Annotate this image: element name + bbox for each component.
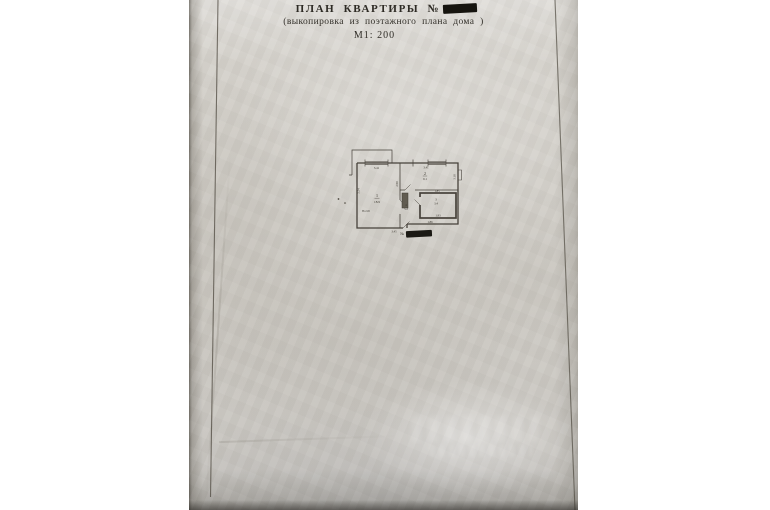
dim-below-bathroom: 1.86 bbox=[427, 220, 433, 224]
dim-left-wall: 5.54 bbox=[357, 188, 361, 194]
room3-area: 3.4 bbox=[434, 202, 438, 206]
document-header: ПЛАН КВАРТИРЫ № (выкопировка из поэтажно… bbox=[189, 3, 578, 42]
title-text: ПЛАН КВАРТИРЫ № bbox=[296, 3, 441, 15]
room2-number: 2 bbox=[424, 171, 426, 176]
dim-top-right: 3.41 bbox=[423, 166, 429, 170]
kitchen-door bbox=[405, 185, 411, 191]
room1-area: 18.9 bbox=[374, 200, 380, 204]
frame-line-left bbox=[211, 0, 219, 497]
apartment-number-label: № bbox=[400, 231, 404, 236]
dim-bathroom-bottom: 1.93 bbox=[435, 214, 441, 218]
dim-middle-wall: 2.90 bbox=[395, 181, 399, 187]
document-title: ПЛАН КВАРТИРЫ № bbox=[189, 3, 578, 16]
scale-label: М1: 200 bbox=[189, 30, 578, 42]
redaction-bar-title-number bbox=[443, 3, 477, 14]
photographed-document: ПЛАН КВАРТИРЫ № (выкопировка из поэтажно… bbox=[189, 0, 578, 510]
room1-number: 1 bbox=[376, 193, 378, 198]
entrance-door bbox=[403, 222, 410, 229]
dim-bottom: 3.45 bbox=[391, 230, 397, 234]
floor-plan: 1 18.9 Н=2.65 2 9.1 3 3.4 4 5.2 3.41 3.4… bbox=[337, 144, 467, 246]
stray-mark bbox=[344, 202, 346, 204]
redaction-bar-plan-number bbox=[406, 230, 432, 238]
room4-area: 5.2 bbox=[404, 207, 408, 211]
document-frame bbox=[189, 0, 578, 510]
document-subtitle: (выкопировка из поэтажного плана дома ) bbox=[189, 16, 578, 28]
dim-right-wall: 3.18 bbox=[453, 174, 457, 180]
stray-mark bbox=[338, 198, 340, 200]
room2-area: 9.1 bbox=[423, 177, 427, 181]
dim-above-bathroom: 1.85 bbox=[434, 189, 440, 193]
dim-top-left: 3.41 bbox=[374, 166, 380, 170]
frame-line-right bbox=[555, 0, 575, 510]
room1-height-note: Н=2.65 bbox=[362, 210, 371, 213]
